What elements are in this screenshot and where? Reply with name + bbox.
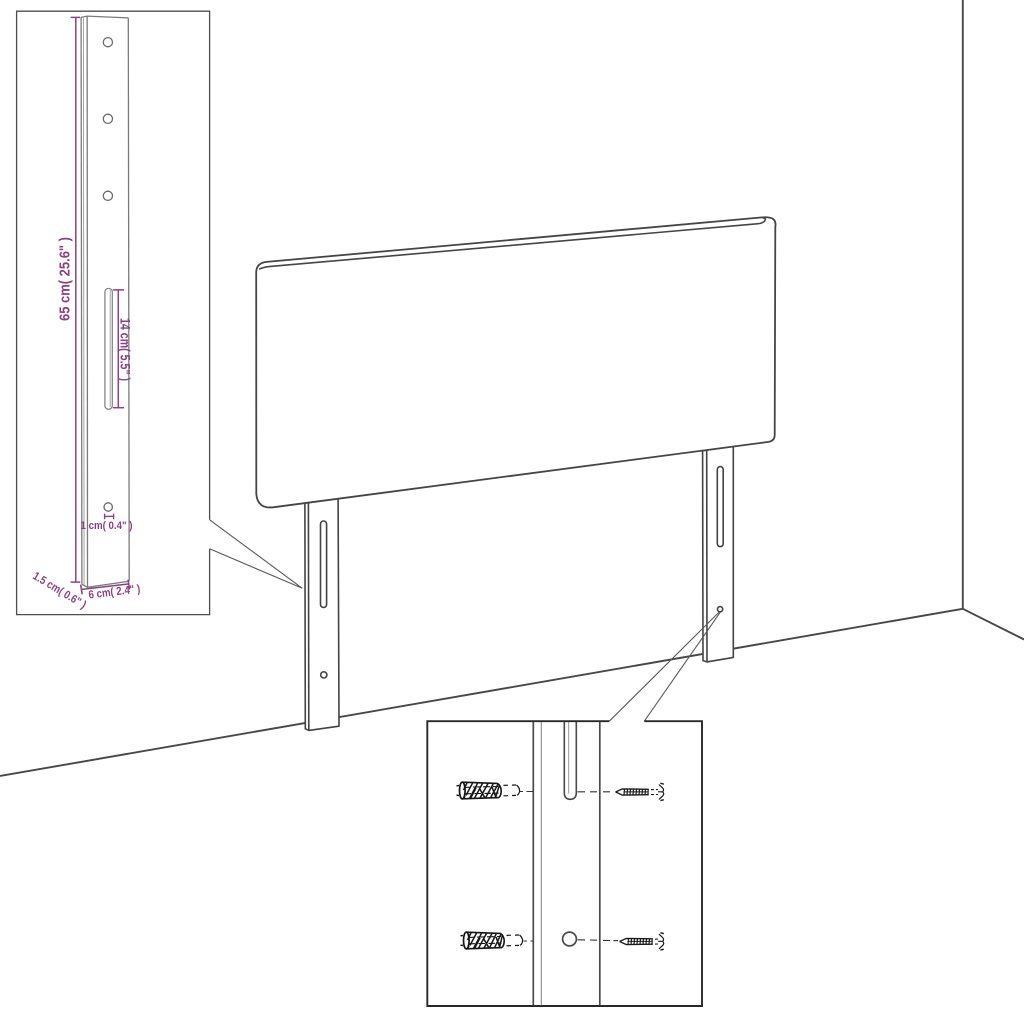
svg-text:65 cm( 25.6" ): 65 cm( 25.6" ) <box>57 237 74 321</box>
svg-text:1 cm( 0.4" ): 1 cm( 0.4" ) <box>81 520 133 532</box>
svg-text:14 cm( 5.5" ): 14 cm( 5.5" ) <box>117 318 133 381</box>
